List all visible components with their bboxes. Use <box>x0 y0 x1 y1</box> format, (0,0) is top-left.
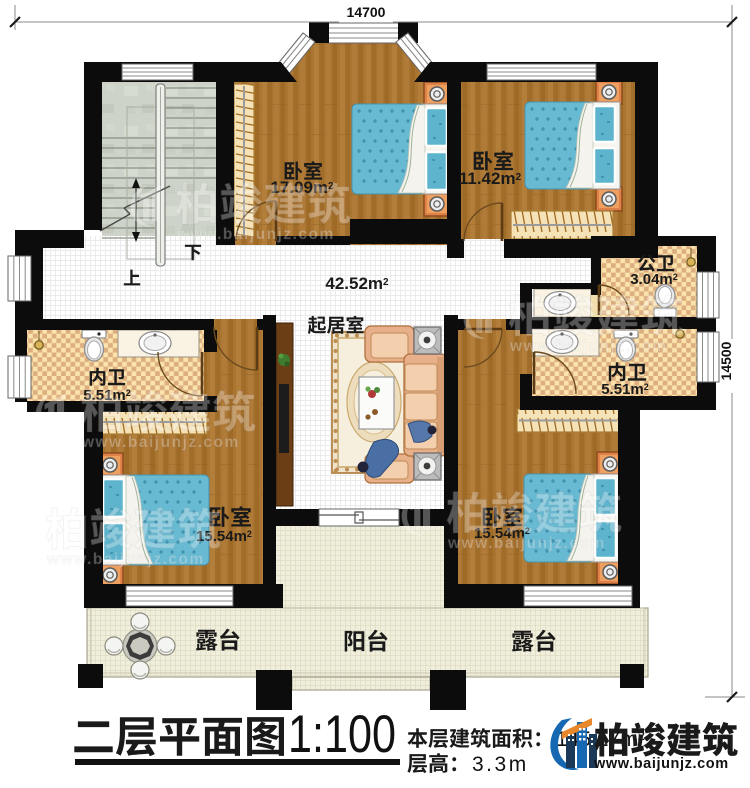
svg-text:14700: 14700 <box>347 4 386 20</box>
svg-text:3.3m: 3.3m <box>472 753 529 776</box>
svg-text:www.baijunjz.com: www.baijunjz.com <box>447 535 606 552</box>
svg-text:1:100: 1:100 <box>288 705 396 764</box>
svg-text:www.baijunjz.com: www.baijunjz.com <box>509 338 668 355</box>
svg-text:3.04m2: 3.04m2 <box>630 271 678 288</box>
svg-text:5.51m2: 5.51m2 <box>601 381 649 398</box>
svg-text:www.baijunjz.com: www.baijunjz.com <box>81 434 240 451</box>
svg-text:14500: 14500 <box>718 341 734 380</box>
svg-text:www.baijunjz.com: www.baijunjz.com <box>46 551 205 568</box>
svg-text:www.baijunjz.com: www.baijunjz.com <box>176 226 335 243</box>
svg-text:42.52m2: 42.52m2 <box>325 274 389 293</box>
svg-text:www.baijunjz.com: www.baijunjz.com <box>593 756 729 772</box>
svg-text:11.42m2: 11.42m2 <box>459 169 522 188</box>
